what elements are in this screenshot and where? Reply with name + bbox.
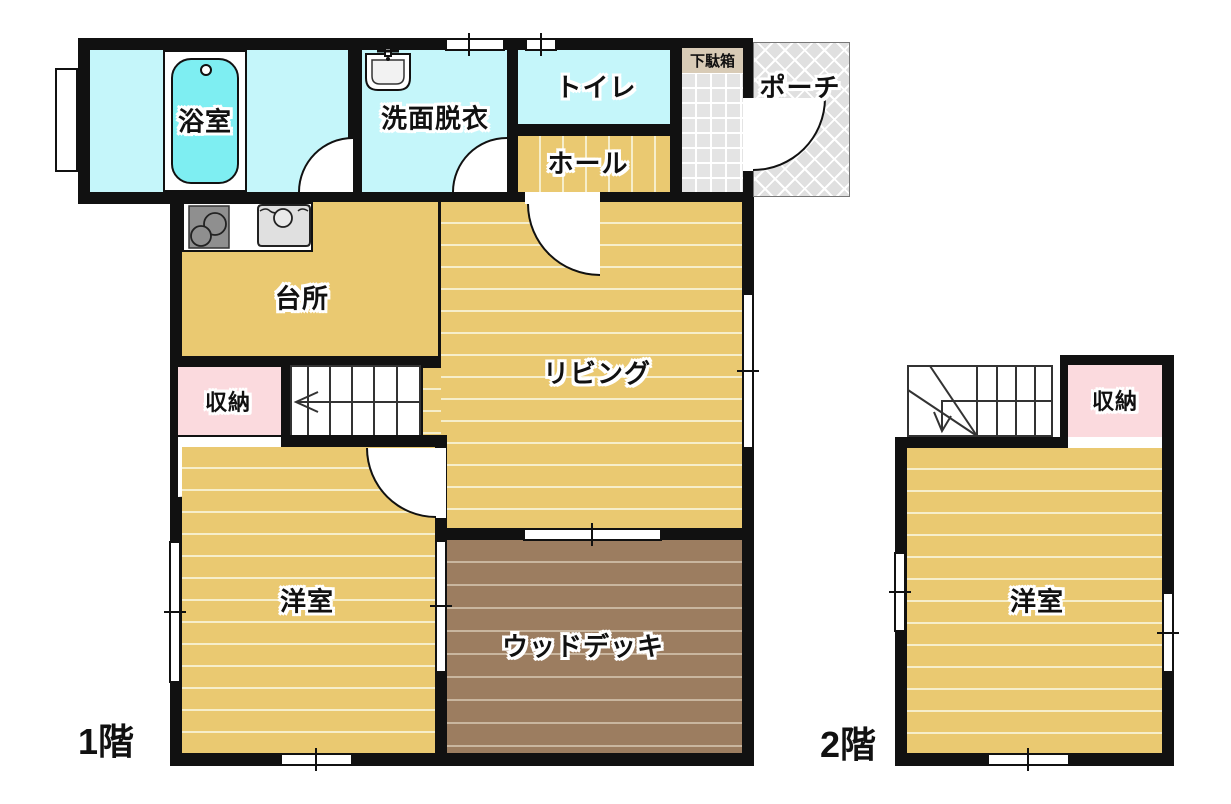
floor-label-2f: 2階 (820, 716, 876, 768)
room-label-bath: 浴室 (178, 102, 232, 139)
window (445, 38, 505, 51)
window-tick (164, 611, 186, 613)
window (55, 68, 78, 172)
room-label-wood-deck: ウッドデッキ (502, 627, 664, 664)
stove-icon (188, 205, 230, 249)
door-opening (743, 98, 753, 171)
washstand-icon (364, 46, 412, 92)
room-label-toilet: トイレ (555, 68, 636, 105)
stairs-1f (290, 365, 421, 437)
window-tick (1027, 748, 1029, 771)
stairs-2f (907, 365, 1053, 437)
room-label-western-1f: 洋室 (280, 582, 334, 619)
door-opening (436, 448, 446, 518)
kitchen-sink-icon (256, 203, 312, 248)
entrance-tile (682, 73, 743, 192)
bathtub-drain (200, 64, 212, 76)
room-label-porch: ポーチ (759, 68, 840, 105)
window-tick (737, 370, 759, 372)
window-tick (591, 523, 593, 546)
window-tick (1157, 632, 1179, 634)
window-tick (889, 591, 911, 593)
shoe-cabinet: 下駄箱 (682, 48, 743, 73)
window-tick (540, 33, 542, 56)
room-label-storage-1f: 収納 (205, 385, 251, 417)
room-label-living: リビング (543, 354, 651, 391)
room-label-washroom: 洗面脱衣 (381, 99, 489, 136)
room-living-strip (423, 368, 441, 435)
window-tick (430, 605, 452, 607)
window-tick (468, 33, 470, 56)
window-tick (315, 748, 317, 771)
room-label-western-2f: 洋室 (1010, 582, 1064, 619)
room-label-storage-2f: 収納 (1092, 384, 1138, 416)
room-label-hall: ホール (547, 144, 628, 181)
room-label-kitchen: 台所 (275, 279, 329, 316)
door-opening (1068, 437, 1162, 448)
door-opening (525, 192, 600, 204)
floor-plan-canvas: 下駄箱 (0, 0, 1231, 804)
floor-label-1f: 1階 (78, 713, 134, 765)
shoe-cabinet-label: 下駄箱 (690, 50, 735, 71)
